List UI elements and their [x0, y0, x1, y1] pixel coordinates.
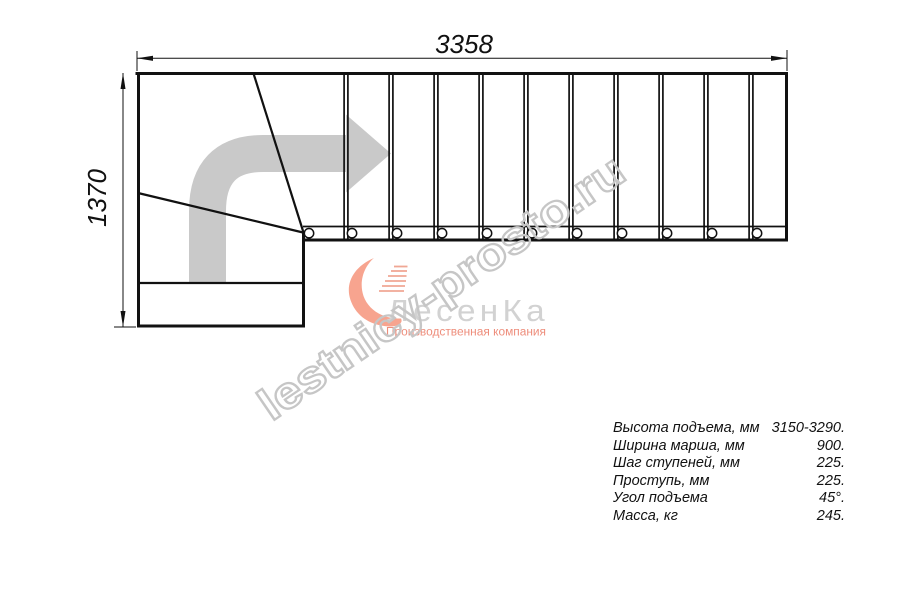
spec-row: Масса, кг 245.: [613, 508, 845, 526]
dimension-width-label: 3358: [435, 29, 493, 59]
spec-table: Высота подъема, мм 3150-3290. Ширина мар…: [613, 420, 845, 525]
watermark-text: lestnicy-prosto.ru: [248, 144, 634, 430]
spec-value: 245.: [817, 508, 845, 526]
spec-label: Масса, кг: [613, 508, 678, 526]
direction-arrow-head: [346, 115, 391, 193]
spec-label: Ширина марша, мм: [613, 438, 745, 456]
dimension-height-label: 1370: [82, 169, 112, 227]
spec-row: Ширина марша, мм 900.: [613, 438, 845, 456]
spec-label: Высота подъема, мм: [613, 420, 760, 438]
spec-row: Шаг ступеней, мм 225.: [613, 455, 845, 473]
direction-arrow-shaft: [208, 154, 347, 283]
spec-label: Проступь, мм: [613, 473, 709, 491]
technical-drawing-page: 3358 1370 ЛесенКа Производственная компа…: [0, 0, 900, 600]
dim-arrow-left: [137, 56, 153, 61]
dim-arrow-right: [771, 56, 787, 61]
spec-row: Проступь, мм 225.: [613, 473, 845, 491]
spec-row: Высота подъема, мм 3150-3290.: [613, 420, 845, 438]
spec-value: 900.: [817, 438, 845, 456]
dimension-width: 3358: [137, 29, 787, 71]
dim-arrow-bottom: [121, 311, 126, 327]
spec-value: 225.: [817, 473, 845, 491]
spec-value: 45°.: [819, 490, 845, 508]
dimension-height: 1370: [82, 73, 136, 327]
dim-arrow-top: [121, 73, 126, 89]
spec-value: 3150-3290.: [772, 420, 845, 438]
spec-label: Угол подъема: [613, 490, 708, 508]
direction-arrow: [208, 115, 392, 283]
spec-label: Шаг ступеней, мм: [613, 455, 740, 473]
spec-row: Угол подъема 45°.: [613, 490, 845, 508]
spec-value: 225.: [817, 455, 845, 473]
